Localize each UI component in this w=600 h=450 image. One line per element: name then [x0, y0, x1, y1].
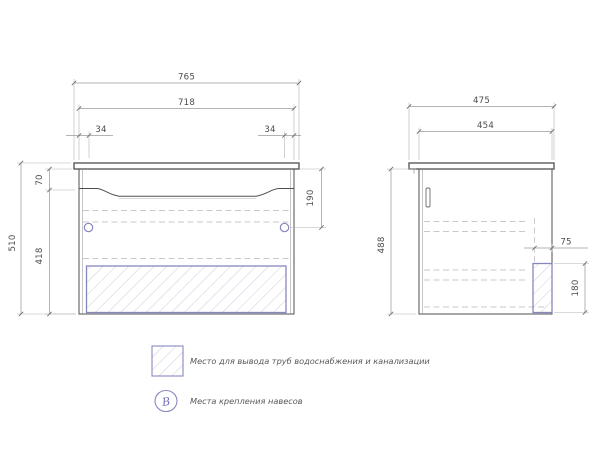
- legend-item-pipe-zone: Место для вывода труб водоснабжения и ка…: [152, 346, 430, 376]
- dim-hole-from-top: 190: [306, 189, 316, 206]
- pipe-hatch-square-icon: [152, 346, 183, 376]
- front-hidden-lines: [83, 211, 290, 259]
- mounting-hole-left-icon: [84, 223, 92, 231]
- dim-hole-offset-left: 34: [95, 125, 106, 135]
- side-countertop: [409, 163, 554, 169]
- front-pipe-zone-hatch: [87, 266, 287, 313]
- dim-side-body-height: 488: [377, 236, 387, 253]
- dim-pipe-zone-height: 180: [571, 279, 581, 296]
- dim-body-height: 418: [35, 247, 45, 264]
- dim-hole-offset-right: 34: [264, 125, 275, 135]
- mounting-hole-right-icon: [280, 223, 288, 231]
- side-pipe-zone-hatch: [533, 264, 552, 313]
- dim-cabinet-width: 718: [178, 98, 195, 108]
- side-view: [409, 163, 554, 314]
- technical-drawing-page: 765 718 34 34 510 70 418: [0, 0, 600, 450]
- side-cabinet-body: [419, 169, 552, 314]
- legend-hanger-label: Места крепления навесов: [190, 396, 303, 406]
- dim-overall-width: 765: [178, 73, 195, 83]
- dim-countertop-to-front: 70: [35, 174, 45, 185]
- dim-overall-height: 510: [8, 234, 18, 251]
- legend-pipe-zone-label: Место для вывода труб водоснабжения и ка…: [190, 356, 430, 366]
- door-handle: [426, 188, 430, 207]
- legend: Место для вывода труб водоснабжения и ка…: [152, 346, 430, 412]
- basin-front-profile: [79, 189, 294, 197]
- front-countertop: [74, 163, 299, 169]
- side-hidden-lines: [424, 218, 546, 307]
- front-view: [74, 163, 299, 314]
- legend-item-hanger: В Места крепления навесов: [155, 391, 303, 412]
- dim-overall-depth: 475: [473, 96, 490, 106]
- vanity-dimension-drawing: 765 718 34 34 510 70 418: [0, 0, 600, 450]
- hanger-symbol-letter: В: [160, 395, 171, 409]
- side-view-dimensions: 475 454 488 75 180: [377, 96, 589, 316]
- dim-cabinet-depth: 454: [477, 121, 494, 131]
- dim-pipe-zone-depth: 75: [560, 238, 571, 248]
